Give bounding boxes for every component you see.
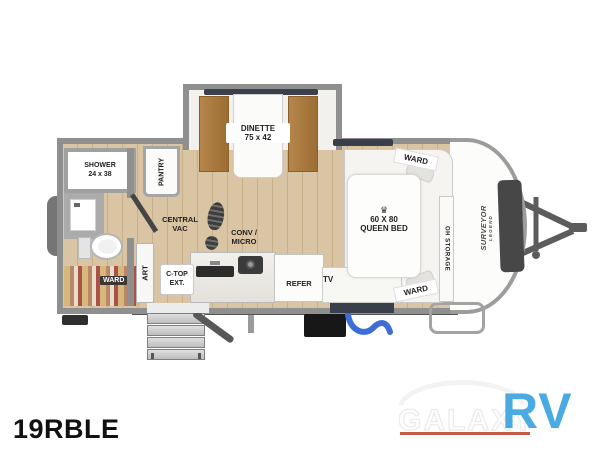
art-label: ART [141,265,150,280]
bedroom-window [333,139,393,146]
floorplan-canvas: DINETTE 75 x 42 SURVEYOR LEGEND SHOWER 2… [0,0,614,460]
stabilizer-outline [429,302,485,334]
support-post [248,315,254,333]
art-cabinet: ART [136,243,154,303]
galaxy-rv-logo: GALAXY RV [390,386,612,458]
shower-label-line2: 24 x 38 [84,171,116,179]
lower-window [330,303,394,313]
burner-icon [246,260,255,269]
brand-series: LEGEND [488,205,493,250]
pantry-label: PANTRY [158,158,165,186]
bathroom-wall [127,148,134,198]
brand-badge: SURVEYOR LEGEND [458,200,514,256]
refer-label: REFER [286,280,311,289]
dinette-label-line1: DINETTE [226,124,290,133]
refrigerator: REFER [274,254,324,302]
pantry-cabinet: PANTRY [143,146,180,197]
toilet-seat [98,239,117,254]
tv-label: TV [323,275,333,284]
dinette-label-line2: 75 x 42 [226,133,290,142]
wheel [304,314,346,337]
model-number: 19RBLE [13,414,120,445]
overhead-storage: OH STORAGE [439,196,454,302]
shower: SHOWER 24 x 38 [64,148,136,193]
faucet-icon [74,203,80,207]
entry-door-opening [147,303,209,313]
shower-label-line1: SHOWER [84,162,116,170]
kitchen-sink [196,266,234,277]
dinette-label: DINETTE 75 x 42 [226,123,290,143]
brand-name: SURVEYOR [479,205,488,250]
oh-storage-label: OH STORAGE [444,226,450,271]
entry-steps [147,313,205,359]
crown-icon: ♛ [351,206,417,215]
dinette-cushion-left [199,96,229,172]
dinette-cushion-right [288,96,318,172]
queen-bed-label: ♛ 60 X 80 QUEEN BED [351,206,417,233]
convection-microwave-label: CONV / MICRO [216,229,272,246]
countertop-extension-label: C-TOP EXT. [160,264,194,295]
central-vac-label: CENTRAL VAC [150,216,210,233]
kitchen-counter [190,252,276,303]
bathroom-wall [127,238,134,306]
logo-rv-text: RV [502,382,573,440]
toilet-tank [78,237,91,259]
leveling-foot [62,315,88,325]
kitchen-faucet-icon [210,261,220,265]
bath-wardrobe-label: WARD [100,276,127,285]
